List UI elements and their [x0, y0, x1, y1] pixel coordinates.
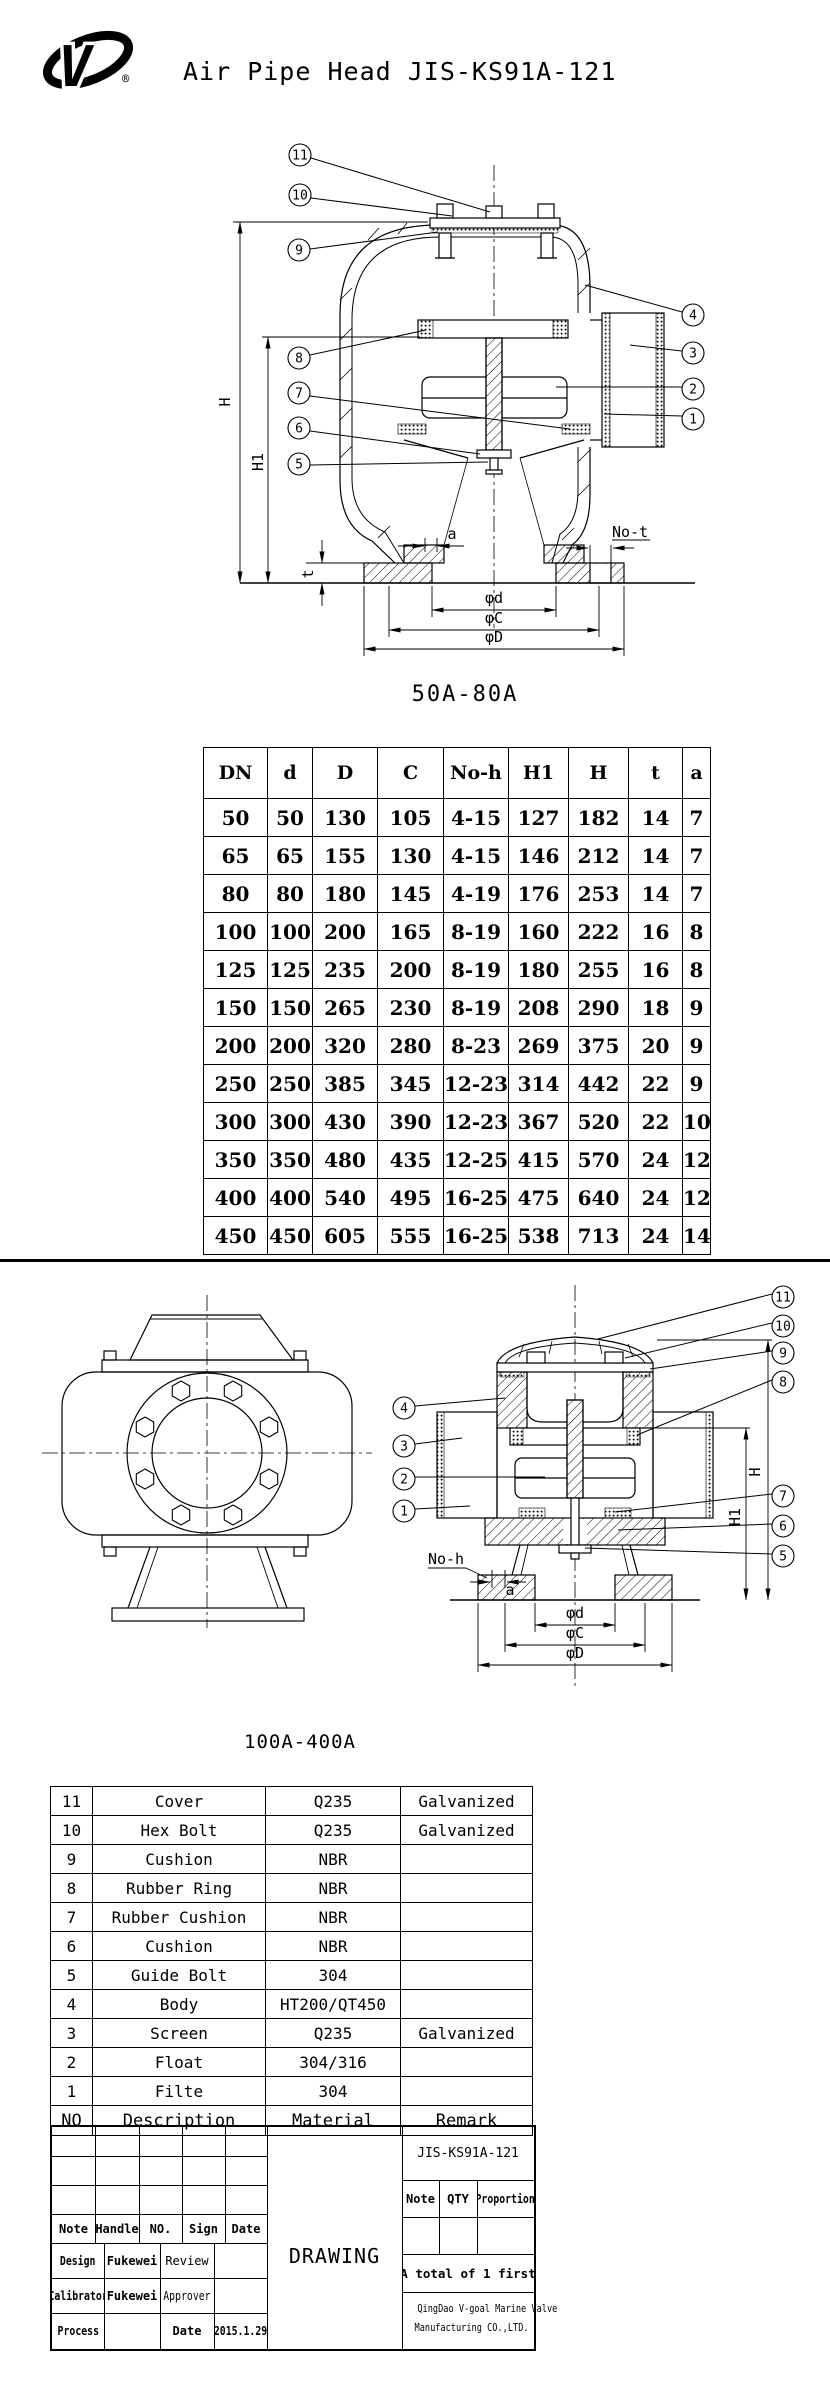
part-no: 1	[51, 2077, 93, 2106]
sign-header-handle: Handle	[95, 2214, 139, 2243]
cell-dn: 100	[204, 913, 268, 951]
cell-a: 8	[683, 913, 711, 951]
cell-h: 255	[569, 951, 629, 989]
process-label: Process	[52, 2313, 104, 2349]
dim-table-header: No-h	[444, 748, 509, 799]
part-description: Cushion	[93, 1932, 266, 1961]
dim-table-row: 250 250 385 345 12-23 314 442 22 9	[204, 1065, 711, 1103]
dim-label-a: a	[447, 525, 456, 543]
cell-d: 50	[268, 799, 313, 837]
cell-c: 200	[378, 951, 444, 989]
dim-table-row: 50 50 130 105 4-15 127 182 14 7	[204, 799, 711, 837]
parts-table-row: 2 Float 304/316	[51, 2048, 533, 2077]
part-material: 304/316	[266, 2048, 401, 2077]
callout-6: 6	[772, 1515, 794, 1537]
dim-label-phi-capd: φD	[566, 1644, 584, 1662]
cell-h1: 367	[509, 1103, 569, 1141]
dim-table-header: H1	[509, 748, 569, 799]
cell-a: 12	[683, 1179, 711, 1217]
svg-text:10: 10	[292, 189, 308, 204]
part-description: Rubber Ring	[93, 1874, 266, 1903]
svg-text:4: 4	[400, 1402, 408, 1417]
cell-capd: 180	[313, 875, 378, 913]
dim-table-header: a	[683, 748, 711, 799]
part-material: HT200/QT450	[266, 1990, 401, 2019]
cell-h: 253	[569, 875, 629, 913]
dim-table-header: DN	[204, 748, 268, 799]
cell-capd: 130	[313, 799, 378, 837]
cell-h: 570	[569, 1141, 629, 1179]
sign-header-sign: Sign	[182, 2214, 225, 2243]
cell-no-h: 12-23	[444, 1103, 509, 1141]
callout-4: 4	[393, 1397, 415, 1419]
callout-1: 1	[682, 408, 704, 430]
sign-header-no: NO.	[139, 2214, 182, 2243]
part-no: 9	[51, 1845, 93, 1874]
registered-trademark-icon: ®	[122, 72, 129, 86]
svg-text:1: 1	[689, 413, 697, 428]
cell-capd: 320	[313, 1027, 378, 1065]
company-logo: V V	[36, 24, 136, 98]
cell-a: 7	[683, 837, 711, 875]
dim-table-row: 125 125 235 200 8-19 180 255 16 8	[204, 951, 711, 989]
dim-table-row: 200 200 320 280 8-23 269 375 20 9	[204, 1027, 711, 1065]
cell-t: 22	[629, 1065, 683, 1103]
cell-h1: 314	[509, 1065, 569, 1103]
svg-text:4: 4	[689, 309, 697, 324]
cell-t: 16	[629, 951, 683, 989]
part-no: 5	[51, 1961, 93, 1990]
callout-5: 5	[288, 453, 310, 475]
part-no: 7	[51, 1903, 93, 1932]
cell-h: 212	[569, 837, 629, 875]
dim-table-header: t	[629, 748, 683, 799]
cell-dn: 450	[204, 1217, 268, 1255]
cell-dn: 150	[204, 989, 268, 1027]
dim-label-phi-c: φC	[566, 1624, 584, 1642]
callout-7: 7	[772, 1485, 794, 1507]
cell-h1: 160	[509, 913, 569, 951]
part-description: Cushion	[93, 1845, 266, 1874]
cell-capd: 605	[313, 1217, 378, 1255]
dim-table-header: D	[313, 748, 378, 799]
part-material: 304	[266, 2077, 401, 2106]
cell-h: 290	[569, 989, 629, 1027]
review-label: Review	[160, 2243, 214, 2278]
svg-text:8: 8	[295, 352, 303, 367]
calibrator-name: Fukewei	[104, 2278, 160, 2313]
approver-label-text: Approver	[163, 2289, 210, 2303]
cell-t: 22	[629, 1103, 683, 1141]
cell-c: 105	[378, 799, 444, 837]
cell-h: 640	[569, 1179, 629, 1217]
design-name: Fukewei	[104, 2243, 160, 2278]
callout-8: 8	[288, 347, 310, 369]
part-remark	[401, 1845, 533, 1874]
cell-d: 250	[268, 1065, 313, 1103]
part-no: 8	[51, 1874, 93, 1903]
cell-no-h: 8-19	[444, 951, 509, 989]
parts-table-row: 9 Cushion NBR	[51, 1845, 533, 1874]
process-label-text: Process	[57, 2324, 98, 2338]
cell-a: 9	[683, 989, 711, 1027]
callout-5: 5	[772, 1545, 794, 1567]
part-no: 11	[51, 1787, 93, 1816]
cell-no-h: 4-15	[444, 799, 509, 837]
parts-table-row: 10 Hex Bolt Q235 Galvanized	[51, 1816, 533, 1845]
calibrator-label-text: Calibrator	[52, 2289, 104, 2303]
part-material: NBR	[266, 1903, 401, 1932]
dim-table-header: d	[268, 748, 313, 799]
drawing-number: JIS-KS91A-121	[402, 2127, 534, 2180]
part-material: Q235	[266, 1816, 401, 1845]
cell-d: 125	[268, 951, 313, 989]
part-remark	[401, 1903, 533, 1932]
callout-2: 2	[682, 378, 704, 400]
cell-d: 200	[268, 1027, 313, 1065]
parts-table-row: 3 Screen Q235 Galvanized	[51, 2019, 533, 2048]
front-view	[42, 1295, 372, 1628]
dim-label-h: H	[746, 1467, 764, 1476]
cell-t: 18	[629, 989, 683, 1027]
cell-dn: 125	[204, 951, 268, 989]
page-title: Air Pipe Head JIS-KS91A-121	[183, 57, 616, 86]
svg-text:11: 11	[775, 1291, 791, 1306]
drawing-100a-400a: H H1 No-h a φd φC φD 11 10 9 8 7 6 5 4 3…	[0, 1270, 830, 1735]
cell-d: 450	[268, 1217, 313, 1255]
logo-letter: V	[58, 35, 95, 98]
cell-h: 713	[569, 1217, 629, 1255]
date-value-text: 2015.1.29	[214, 2324, 267, 2338]
callout-3: 3	[682, 342, 704, 364]
company-line1: QingDao V-goal Marine Valve	[417, 2300, 557, 2319]
cell-no-h: 8-19	[444, 989, 509, 1027]
part-description: Rubber Cushion	[93, 1903, 266, 1932]
parts-table-row: 1 Filte 304	[51, 2077, 533, 2106]
cell-t: 16	[629, 913, 683, 951]
part-remark	[401, 2048, 533, 2077]
part-description: Body	[93, 1990, 266, 2019]
svg-text:1: 1	[400, 1505, 408, 1520]
cell-capd: 155	[313, 837, 378, 875]
part-description: Cover	[93, 1787, 266, 1816]
callout-2: 2	[393, 1468, 415, 1490]
cell-h: 520	[569, 1103, 629, 1141]
approver-label: Approver	[160, 2278, 214, 2313]
caption-50a-80a: 50A-80A	[365, 682, 565, 707]
part-no: 6	[51, 1932, 93, 1961]
svg-text:3: 3	[689, 347, 697, 362]
qty-header-qty: QTY	[439, 2180, 477, 2217]
cell-h1: 127	[509, 799, 569, 837]
cell-t: 14	[629, 875, 683, 913]
callout-10: 10	[289, 184, 311, 206]
part-remark: Galvanized	[401, 1816, 533, 1845]
cell-h1: 475	[509, 1179, 569, 1217]
cell-t: 24	[629, 1217, 683, 1255]
dim-label-h1: H1	[726, 1508, 744, 1526]
company-line2: Manufacturing CO.,LTD.	[415, 2319, 529, 2338]
caption-100a-400a: 100A-400A	[200, 1731, 400, 1753]
dim-label-phi-c: φC	[485, 609, 503, 627]
sign-header-date: Date	[225, 2214, 267, 2243]
part-no: 4	[51, 1990, 93, 2019]
parts-table-row: 8 Rubber Ring NBR	[51, 1874, 533, 1903]
cell-h: 182	[569, 799, 629, 837]
dim-label-t: t	[299, 569, 317, 578]
dim-table-row: 400 400 540 495 16-25 475 640 24 12	[204, 1179, 711, 1217]
proportion-text: Proportion	[477, 2192, 534, 2206]
cell-d: 80	[268, 875, 313, 913]
cell-dn: 300	[204, 1103, 268, 1141]
cell-a: 9	[683, 1065, 711, 1103]
part-material: Q235	[266, 1787, 401, 1816]
dim-table-row: 300 300 430 390 12-23 367 520 22 10	[204, 1103, 711, 1141]
cell-c: 435	[378, 1141, 444, 1179]
callout-1: 1	[393, 1500, 415, 1522]
part-description: Filte	[93, 2077, 266, 2106]
dim-table-header: C	[378, 748, 444, 799]
part-no: 10	[51, 1816, 93, 1845]
cell-a: 12	[683, 1141, 711, 1179]
callout-9: 9	[772, 1342, 794, 1364]
cell-dn: 250	[204, 1065, 268, 1103]
parts-table-row: 11 Cover Q235 Galvanized	[51, 1787, 533, 1816]
part-remark: Galvanized	[401, 2019, 533, 2048]
dim-label-h: H	[216, 397, 234, 406]
svg-text:6: 6	[295, 422, 303, 437]
cell-capd: 480	[313, 1141, 378, 1179]
cell-h: 442	[569, 1065, 629, 1103]
cell-no-h: 4-19	[444, 875, 509, 913]
cell-d: 300	[268, 1103, 313, 1141]
cell-d: 150	[268, 989, 313, 1027]
callout-10: 10	[772, 1315, 794, 1337]
svg-text:6: 6	[779, 1520, 787, 1535]
cell-c: 130	[378, 837, 444, 875]
dim-label-phi-capd: φD	[485, 628, 503, 646]
parts-table-row: 6 Cushion NBR	[51, 1932, 533, 1961]
cell-c: 555	[378, 1217, 444, 1255]
svg-text:5: 5	[779, 1550, 787, 1565]
part-material: NBR	[266, 1874, 401, 1903]
callout-9: 9	[288, 239, 310, 261]
drawing-label: DRAWING	[267, 2127, 402, 2367]
cell-d: 400	[268, 1179, 313, 1217]
cell-no-h: 8-19	[444, 913, 509, 951]
parts-table: 11 Cover Q235 Galvanized 10 Hex Bolt Q23…	[50, 1786, 533, 2136]
cell-c: 280	[378, 1027, 444, 1065]
dim-table-row: 65 65 155 130 4-15 146 212 14 7	[204, 837, 711, 875]
cell-h1: 538	[509, 1217, 569, 1255]
cell-c: 145	[378, 875, 444, 913]
dim-table-header-row: DNdDCNo-hH1Hta	[204, 748, 711, 799]
title-block: Note Handle NO. Sign Date Design Fukewei…	[50, 2125, 536, 2351]
part-remark	[401, 1874, 533, 1903]
svg-text:9: 9	[779, 1347, 787, 1362]
design-label: Design	[52, 2243, 104, 2278]
svg-text:9: 9	[295, 244, 303, 259]
svg-text:11: 11	[292, 149, 308, 164]
dim-table-row: 450 450 605 555 16-25 538 713 24 14	[204, 1217, 711, 1255]
date-label: Date	[160, 2313, 214, 2349]
cell-c: 495	[378, 1179, 444, 1217]
callout-3: 3	[393, 1435, 415, 1457]
part-remark	[401, 2077, 533, 2106]
cell-no-h: 16-25	[444, 1217, 509, 1255]
cell-t: 20	[629, 1027, 683, 1065]
parts-table-row: 7 Rubber Cushion NBR	[51, 1903, 533, 1932]
cell-capd: 265	[313, 989, 378, 1027]
cell-h1: 176	[509, 875, 569, 913]
cell-a: 9	[683, 1027, 711, 1065]
cell-capd: 385	[313, 1065, 378, 1103]
callout-7: 7	[288, 382, 310, 404]
cell-h: 222	[569, 913, 629, 951]
callout-11: 11	[772, 1286, 794, 1308]
parts-table-row: 4 Body HT200/QT450	[51, 1990, 533, 2019]
cell-capd: 540	[313, 1179, 378, 1217]
drawing-50a-80a: H H1 t a No-t φd φC φD 11 10 9 8 7 6 5 4…	[0, 140, 830, 680]
dim-label-phi-d: φd	[485, 589, 503, 607]
dim-table-row: 100 100 200 165 8-19 160 222 16 8	[204, 913, 711, 951]
cell-no-h: 12-25	[444, 1141, 509, 1179]
design-label-text: Design	[60, 2254, 96, 2268]
cell-no-h: 4-15	[444, 837, 509, 875]
part-remark	[401, 1990, 533, 2019]
cell-h1: 208	[509, 989, 569, 1027]
dim-label-phi-d: φd	[566, 1604, 584, 1622]
sign-header-note: Note	[52, 2214, 95, 2243]
part-description: Guide Bolt	[93, 1961, 266, 1990]
cell-d: 350	[268, 1141, 313, 1179]
svg-text:3: 3	[400, 1440, 408, 1455]
cell-no-h: 16-25	[444, 1179, 509, 1217]
cell-dn: 400	[204, 1179, 268, 1217]
dim-label-a: a	[505, 1581, 514, 1599]
cell-dn: 80	[204, 875, 268, 913]
cell-a: 8	[683, 951, 711, 989]
cell-capd: 235	[313, 951, 378, 989]
calibrator-label: Calibrator	[52, 2278, 104, 2313]
cell-a: 7	[683, 799, 711, 837]
callout-6: 6	[288, 417, 310, 439]
dim-table-header: H	[569, 748, 629, 799]
company-name: QingDao V-goal Marine Valve Manufacturin…	[402, 2292, 534, 2349]
part-material: Q235	[266, 2019, 401, 2048]
qty-header-proportion: Proportion	[477, 2180, 534, 2217]
cell-t: 14	[629, 799, 683, 837]
dim-table-row: 150 150 265 230 8-19 208 290 18 9	[204, 989, 711, 1027]
svg-text:8: 8	[779, 1376, 787, 1391]
part-remark: Galvanized	[401, 1787, 533, 1816]
cell-a: 7	[683, 875, 711, 913]
part-no: 3	[51, 2019, 93, 2048]
cell-d: 65	[268, 837, 313, 875]
cell-c: 390	[378, 1103, 444, 1141]
cell-capd: 430	[313, 1103, 378, 1141]
cell-capd: 200	[313, 913, 378, 951]
section-divider	[0, 1259, 830, 1262]
cell-h1: 146	[509, 837, 569, 875]
dim-label-no-h: No-h	[428, 1550, 464, 1568]
cell-no-h: 12-23	[444, 1065, 509, 1103]
cell-a: 14	[683, 1217, 711, 1255]
total-note: A total of 1 first	[402, 2254, 534, 2292]
svg-text:10: 10	[775, 1320, 791, 1335]
dim-label-h1: H1	[249, 453, 267, 471]
part-description: Screen	[93, 2019, 266, 2048]
cell-dn: 350	[204, 1141, 268, 1179]
dimension-table: DNdDCNo-hH1Hta 50 50 130 105 4-15 127 18…	[203, 747, 711, 1255]
cell-t: 14	[629, 837, 683, 875]
cell-dn: 50	[204, 799, 268, 837]
drawing-sheet: { "header": { "title": "Air Pipe Head JI…	[0, 0, 830, 2383]
cell-a: 10	[683, 1103, 711, 1141]
cell-h: 375	[569, 1027, 629, 1065]
cell-c: 230	[378, 989, 444, 1027]
cell-t: 24	[629, 1179, 683, 1217]
cell-h1: 269	[509, 1027, 569, 1065]
dim-table-row: 350 350 480 435 12-25 415 570 24 12	[204, 1141, 711, 1179]
dim-table-row: 80 80 180 145 4-19 176 253 14 7	[204, 875, 711, 913]
part-no: 2	[51, 2048, 93, 2077]
part-description: Hex Bolt	[93, 1816, 266, 1845]
cell-no-h: 8-23	[444, 1027, 509, 1065]
svg-text:2: 2	[689, 383, 697, 398]
part-description: Float	[93, 2048, 266, 2077]
cell-dn: 200	[204, 1027, 268, 1065]
callout-4: 4	[682, 304, 704, 326]
cell-h1: 415	[509, 1141, 569, 1179]
cell-h1: 180	[509, 951, 569, 989]
part-remark	[401, 1932, 533, 1961]
cell-c: 345	[378, 1065, 444, 1103]
cell-d: 100	[268, 913, 313, 951]
svg-text:2: 2	[400, 1473, 408, 1488]
part-material: 304	[266, 1961, 401, 1990]
qty-header-note: Note	[402, 2180, 439, 2217]
cell-dn: 65	[204, 837, 268, 875]
cell-c: 165	[378, 913, 444, 951]
section-view: H H1 No-h a φd φC φD 11 10 9 8 7 6 5 4 3…	[393, 1285, 794, 1690]
part-remark	[401, 1961, 533, 1990]
callout-11: 11	[289, 144, 311, 166]
dim-label-no-t: No-t	[612, 523, 648, 541]
callout-8: 8	[772, 1371, 794, 1393]
cell-t: 24	[629, 1141, 683, 1179]
parts-table-row: 5 Guide Bolt 304	[51, 1961, 533, 1990]
svg-text:7: 7	[295, 387, 303, 402]
part-material: NBR	[266, 1845, 401, 1874]
svg-text:7: 7	[779, 1490, 787, 1505]
date-value: 2015.1.29	[214, 2313, 267, 2349]
svg-text:5: 5	[295, 458, 303, 473]
part-material: NBR	[266, 1932, 401, 1961]
